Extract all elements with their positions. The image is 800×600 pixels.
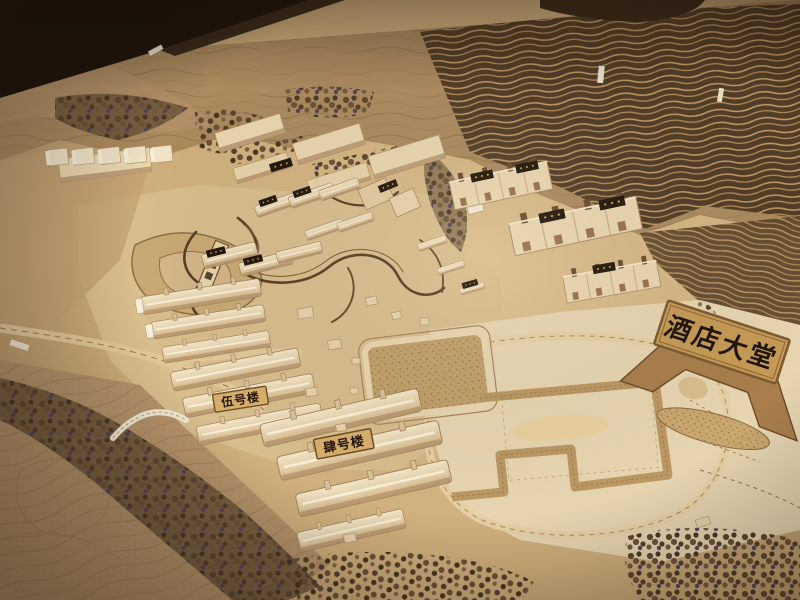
model-photo: 伍号楼 肆号楼 [0, 0, 800, 600]
photo-vignette [0, 0, 800, 600]
